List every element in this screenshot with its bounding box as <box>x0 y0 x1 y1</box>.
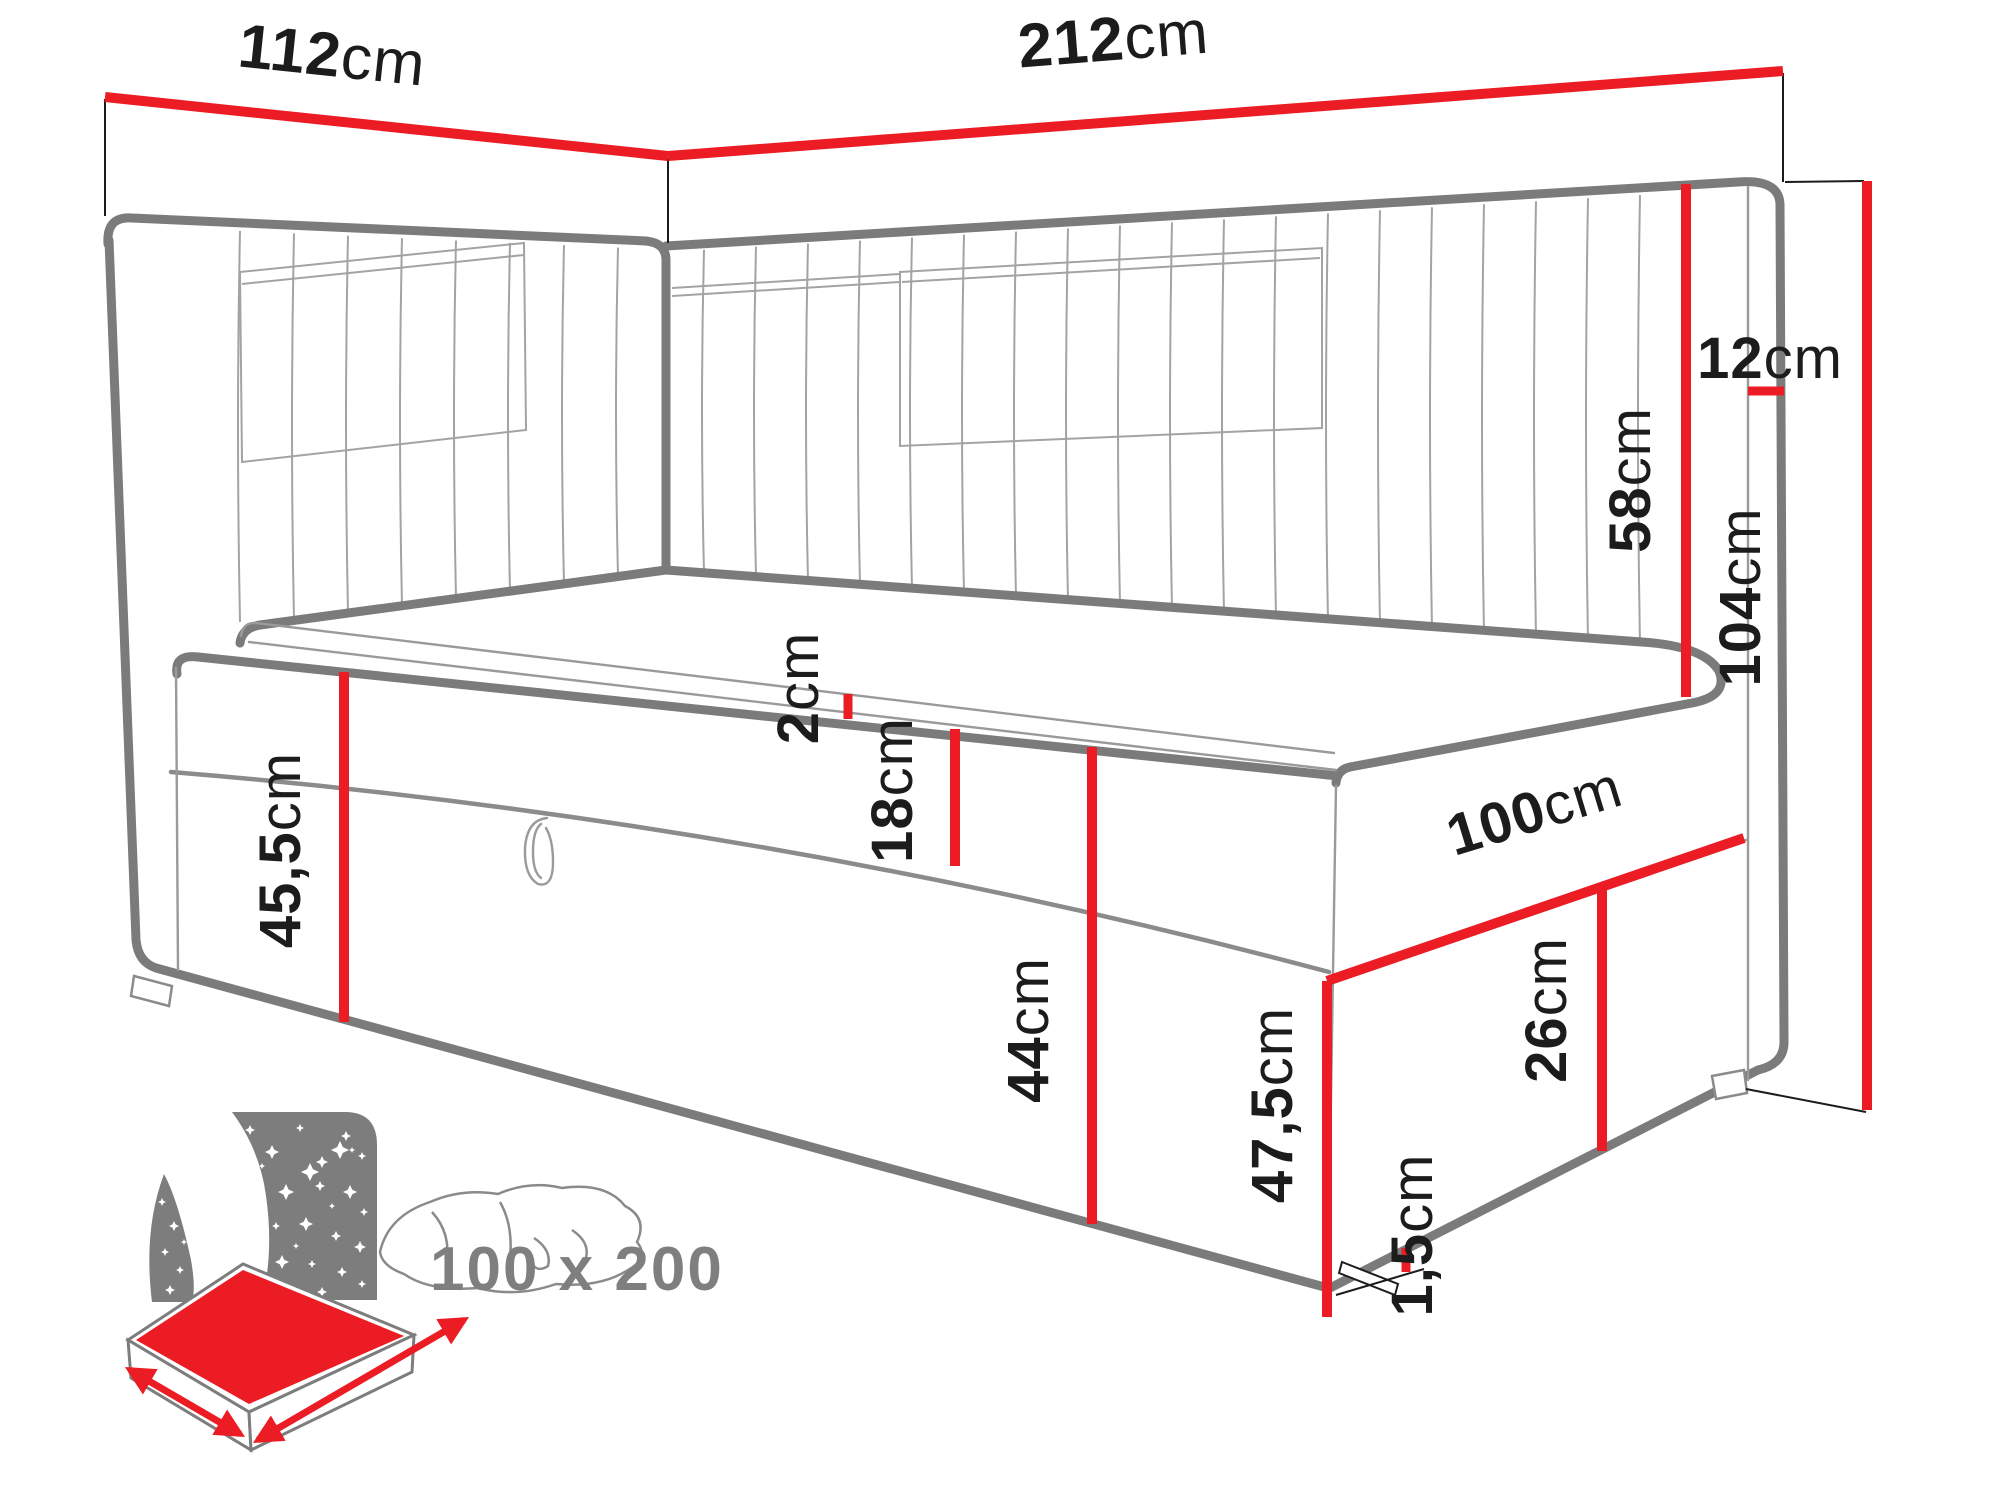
dimension-label-44: 44cm <box>996 957 1061 1103</box>
mattress-size-label: 100 x 200 <box>430 1235 724 1304</box>
dimension-label-18: 18cm <box>860 717 925 863</box>
floor-extension-line-right <box>1746 1089 1866 1112</box>
dimension-label-45-5: 45,5cm <box>248 752 313 948</box>
dimension-label-112: 112cm <box>235 11 429 99</box>
dimension-headboard-thickness: 12cm <box>1697 326 1843 391</box>
dimension-base-height-head: 45,5cm <box>248 672 344 1022</box>
dimension-label-2: 2cm <box>766 632 831 745</box>
headboard-inset-panel <box>672 248 1322 446</box>
dimension-base-height-front: 44cm <box>996 747 1092 1224</box>
side-panel-inset-panel <box>240 243 526 462</box>
dimension-line-212 <box>668 71 1783 156</box>
dimensions: 112cm 212cm 12cm 58cm <box>105 0 1867 1317</box>
left-leg <box>131 976 172 1006</box>
corner-vertical-edge <box>646 241 666 570</box>
dimension-line-112 <box>105 97 668 156</box>
mattress-bottom-edge <box>177 657 1338 776</box>
dimension-head-side-width: 112cm <box>105 11 668 156</box>
dimension-glide-height: 1,5cm <box>1380 1154 1445 1317</box>
storage-handle-inner <box>533 824 541 878</box>
dimension-label-104: 104cm <box>1708 507 1773 686</box>
starry-backdrop-small <box>149 1174 193 1302</box>
dimension-label-100: 100cm <box>1439 754 1629 869</box>
dimension-headboard-above-seat: 58cm <box>1598 184 1686 697</box>
base-left-cap-edge <box>176 668 178 970</box>
side-panel-channel-seams <box>238 231 618 622</box>
mattress-left-edge <box>240 570 666 643</box>
extension-104-top <box>1785 181 1864 182</box>
right-leg <box>1712 1070 1747 1099</box>
dimension-label-26: 26cm <box>1514 937 1579 1083</box>
side-panel-top-edge <box>108 218 646 244</box>
diagram-canvas: 112cm 212cm 12cm 58cm <box>0 0 2000 1500</box>
dimension-label-212: 212cm <box>1015 0 1211 81</box>
dimension-total-length: 212cm <box>668 0 1783 156</box>
diagram-page: 112cm 212cm 12cm 58cm <box>0 0 2000 1500</box>
dimension-label-12: 12cm <box>1697 326 1843 391</box>
headboard-top-and-right-edge <box>666 182 1784 1288</box>
headboard-channel-seams <box>702 195 1640 645</box>
dimension-label-1-5: 1,5cm <box>1380 1154 1445 1317</box>
mattress-size-icon: 100 x 200 <box>128 1112 724 1450</box>
dimension-foot-panel-height: 26cm <box>1514 889 1602 1151</box>
dimension-mattress-height: 18cm <box>860 717 955 866</box>
dimension-label-58: 58cm <box>1598 407 1663 553</box>
dimension-label-47-5: 47,5cm <box>1240 1007 1305 1203</box>
